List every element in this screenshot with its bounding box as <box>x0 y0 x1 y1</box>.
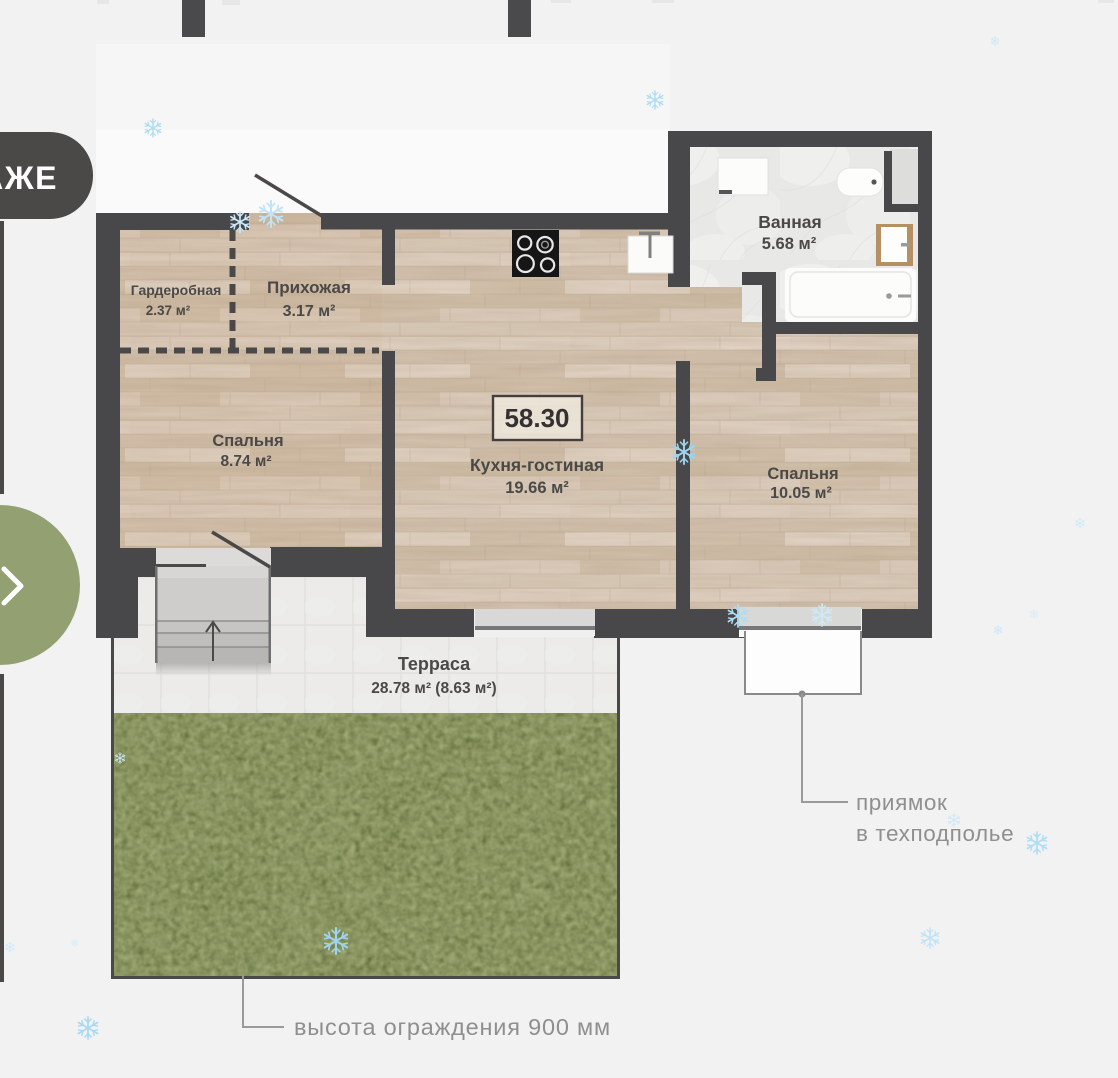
svg-text:приямок: приямок <box>856 790 947 815</box>
svg-text:58.30: 58.30 <box>504 403 569 433</box>
svg-text:Спальня: Спальня <box>767 465 838 483</box>
svg-text:Спальня: Спальня <box>212 432 283 450</box>
svg-text:АЖЕ: АЖЕ <box>0 160 58 196</box>
svg-text:28.78 м² (8.63 м²): 28.78 м² (8.63 м²) <box>371 680 496 697</box>
svg-text:в техподполье: в техподполье <box>856 821 1014 846</box>
svg-text:3.17 м²: 3.17 м² <box>283 303 336 320</box>
svg-text:Терраса: Терраса <box>398 654 471 674</box>
svg-text:8.74 м²: 8.74 м² <box>220 453 271 470</box>
svg-text:2.37 м²: 2.37 м² <box>146 303 191 318</box>
svg-text:Гардеробная: Гардеробная <box>131 282 222 298</box>
svg-text:Кухня-гостиная: Кухня-гостиная <box>470 455 604 475</box>
svg-text:10.05 м²: 10.05 м² <box>770 485 832 502</box>
svg-text:19.66 м²: 19.66 м² <box>505 479 569 497</box>
svg-text:высота ограждения 900 мм: высота ограждения 900 мм <box>294 1014 611 1040</box>
svg-text:Прихожая: Прихожая <box>267 278 351 297</box>
svg-text:Ванная: Ванная <box>758 212 821 232</box>
svg-text:5.68 м²: 5.68 м² <box>762 235 817 253</box>
